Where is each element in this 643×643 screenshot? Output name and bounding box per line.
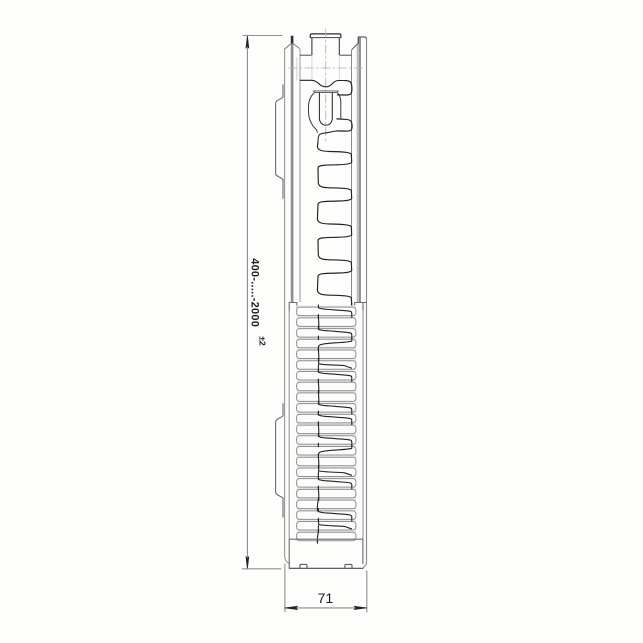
svg-text:71: 71	[318, 591, 334, 607]
svg-text:±2: ±2	[258, 336, 268, 346]
svg-text:400-.....-2000: 400-.....-2000	[249, 258, 261, 327]
